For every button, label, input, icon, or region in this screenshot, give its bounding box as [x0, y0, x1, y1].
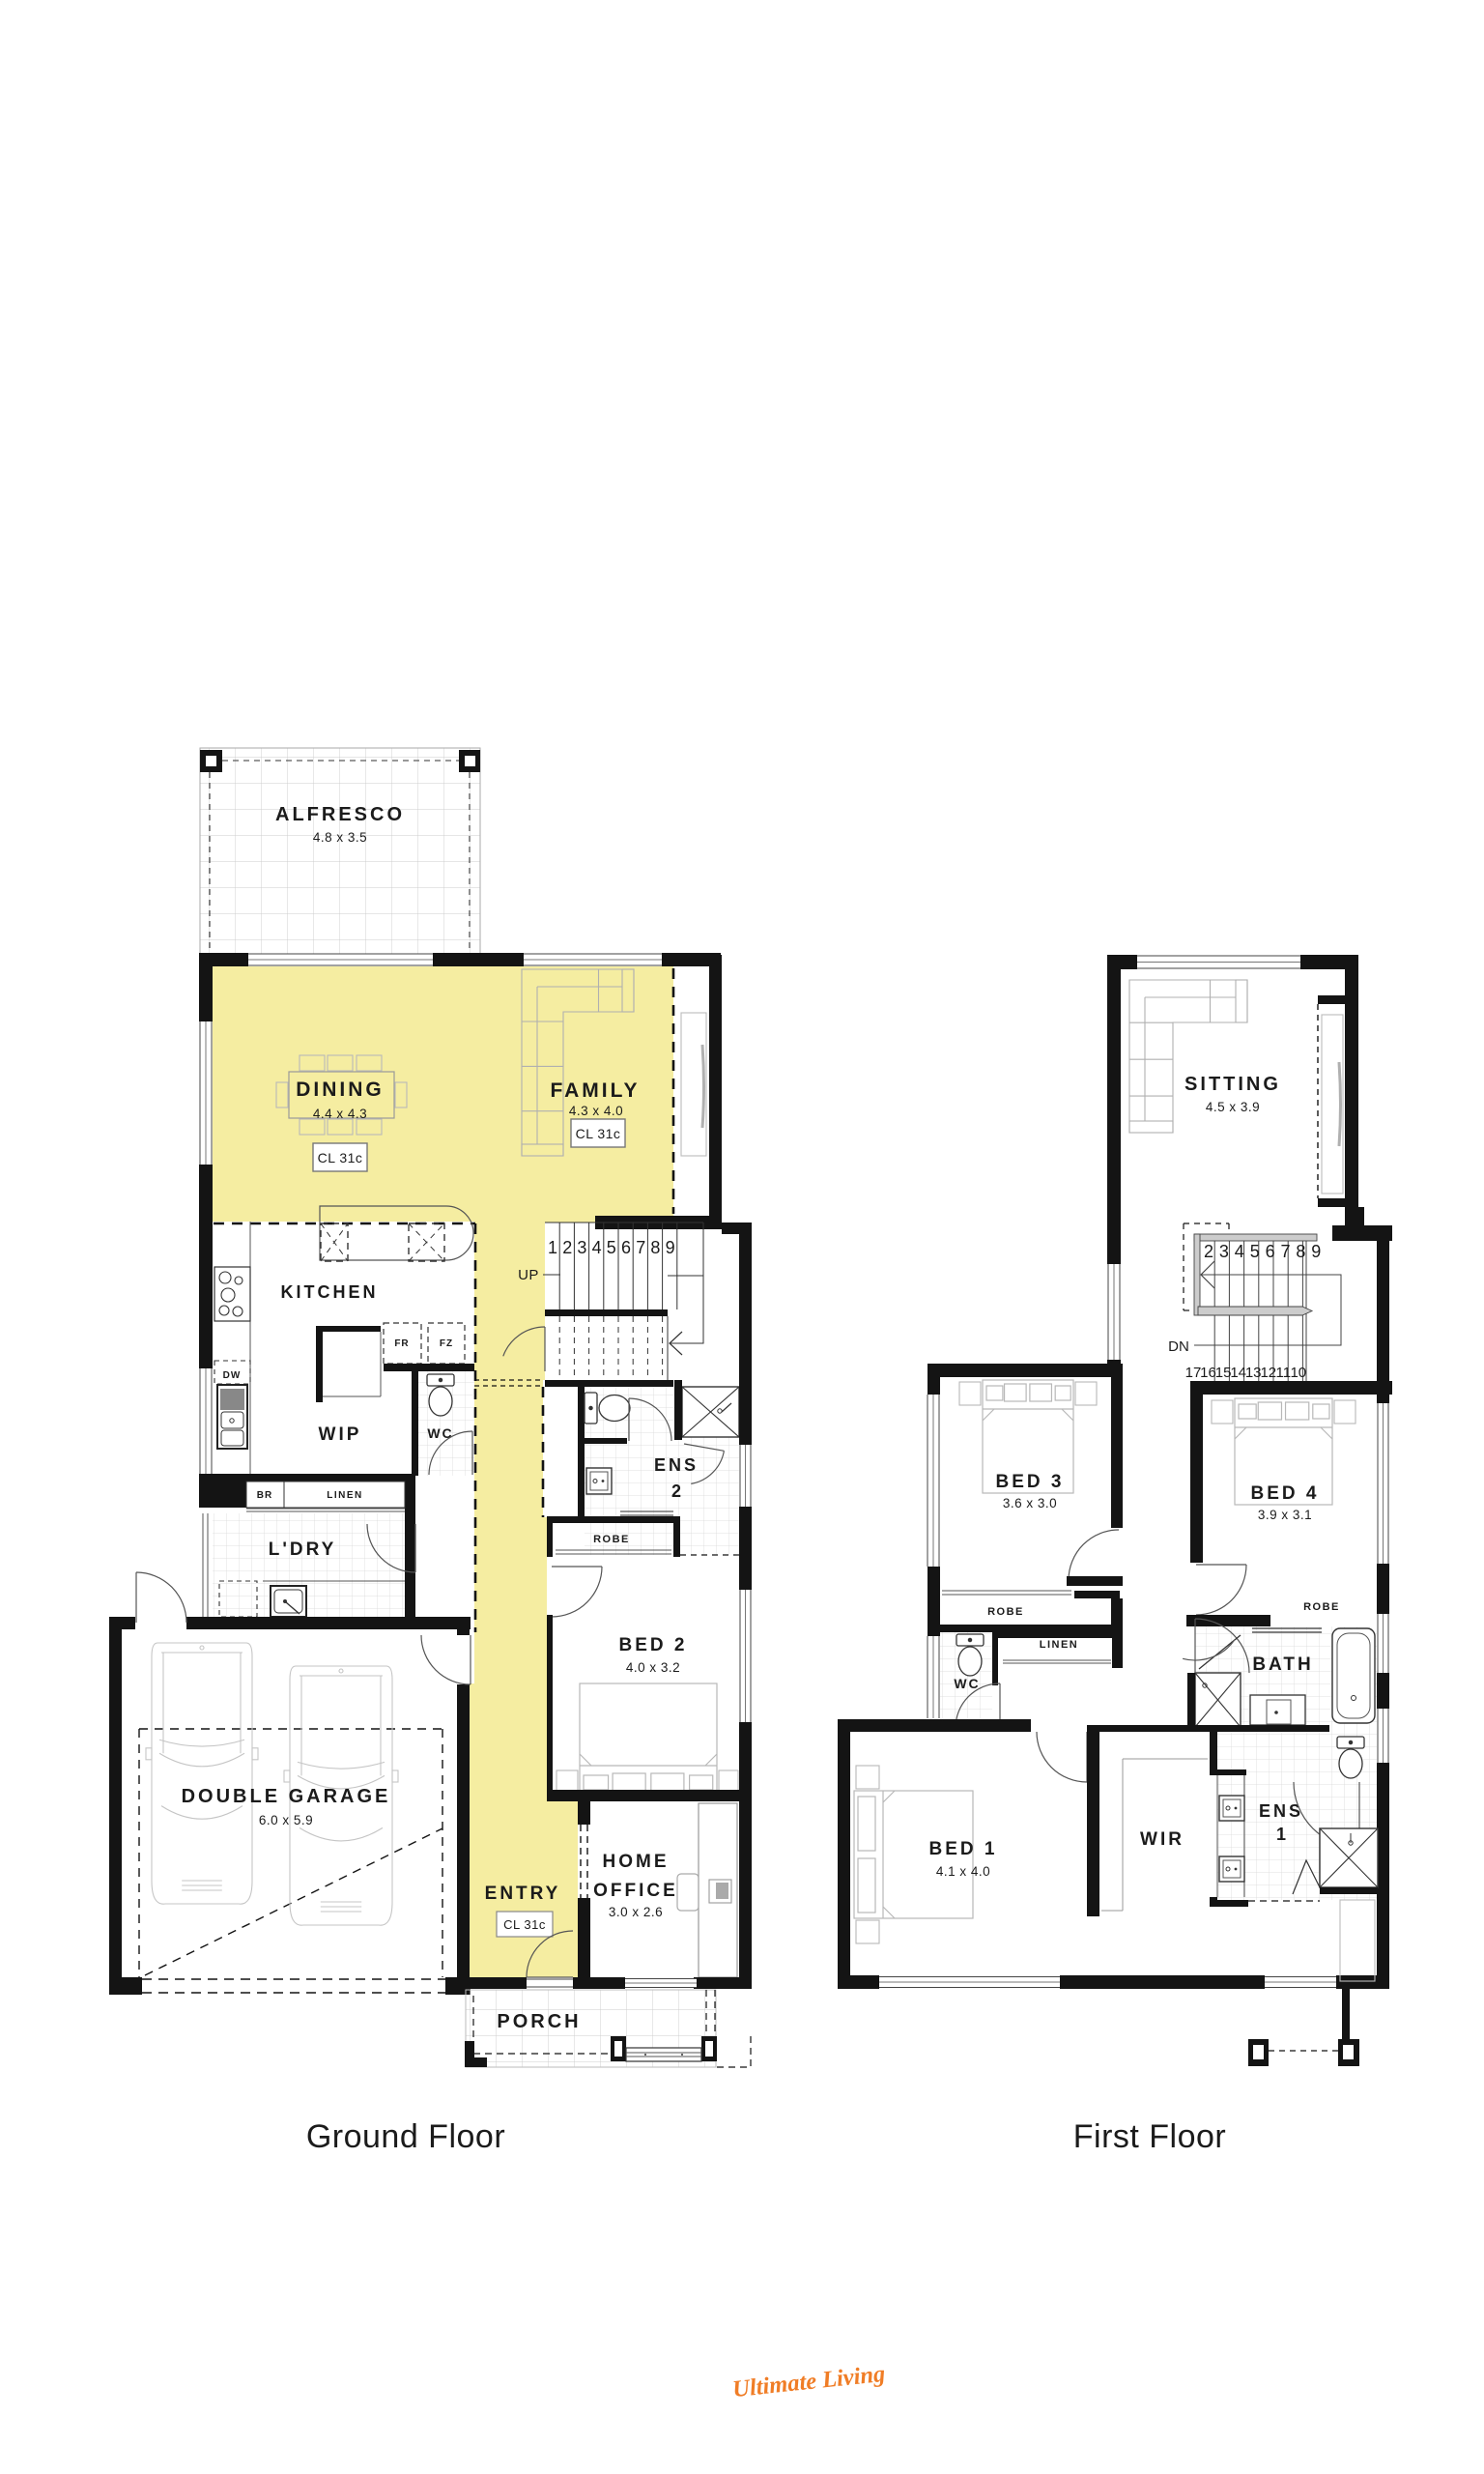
- svg-text:ROBE: ROBE: [987, 1606, 1024, 1618]
- svg-text:4: 4: [1235, 1242, 1244, 1261]
- svg-text:L'DRY: L'DRY: [269, 1539, 337, 1560]
- svg-text:ROBE: ROBE: [593, 1534, 630, 1545]
- svg-text:14: 14: [1230, 1365, 1246, 1381]
- svg-text:BATH: BATH: [1252, 1654, 1313, 1675]
- svg-text:2: 2: [562, 1238, 572, 1257]
- svg-text:BED 3: BED 3: [996, 1472, 1065, 1492]
- svg-text:PORCH: PORCH: [497, 2011, 581, 2032]
- svg-text:CL 31c: CL 31c: [318, 1150, 363, 1165]
- svg-text:12: 12: [1260, 1365, 1276, 1381]
- svg-text:FZ: FZ: [440, 1338, 453, 1349]
- svg-text:DW: DW: [223, 1370, 242, 1381]
- svg-text:9: 9: [666, 1238, 675, 1257]
- svg-text:FAMILY: FAMILY: [550, 1079, 640, 1102]
- svg-text:4.3 x 4.0: 4.3 x 4.0: [569, 1104, 623, 1118]
- svg-text:7: 7: [636, 1238, 645, 1257]
- svg-text:2: 2: [1204, 1242, 1213, 1261]
- svg-text:UP: UP: [518, 1267, 539, 1283]
- svg-text:17: 17: [1185, 1365, 1202, 1381]
- svg-text:DINING: DINING: [296, 1079, 385, 1101]
- svg-text:DN: DN: [1168, 1338, 1189, 1355]
- svg-text:WC: WC: [954, 1676, 980, 1691]
- svg-text:CL 31c: CL 31c: [576, 1126, 621, 1141]
- svg-text:HOME: HOME: [603, 1852, 670, 1872]
- svg-text:4.5 x 3.9: 4.5 x 3.9: [1206, 1100, 1260, 1114]
- svg-text:ALFRESCO: ALFRESCO: [275, 804, 405, 825]
- svg-text:BED 1: BED 1: [929, 1839, 998, 1859]
- svg-text:13: 13: [1245, 1365, 1262, 1381]
- svg-text:4.4 x 4.3: 4.4 x 4.3: [313, 1107, 367, 1121]
- svg-text:9: 9: [1311, 1242, 1321, 1261]
- svg-text:3: 3: [577, 1238, 586, 1257]
- svg-text:3.0 x 2.6: 3.0 x 2.6: [609, 1905, 663, 1919]
- svg-text:5: 5: [1250, 1242, 1260, 1261]
- svg-text:5: 5: [607, 1238, 616, 1257]
- svg-text:ENS: ENS: [654, 1455, 699, 1475]
- svg-text:SITTING: SITTING: [1184, 1074, 1281, 1095]
- svg-text:WC: WC: [427, 1425, 453, 1441]
- svg-text:15: 15: [1215, 1365, 1232, 1381]
- svg-text:8: 8: [650, 1238, 660, 1257]
- svg-text:6: 6: [1266, 1242, 1275, 1261]
- svg-text:1: 1: [1276, 1825, 1286, 1844]
- svg-text:WIP: WIP: [319, 1424, 362, 1445]
- svg-text:7: 7: [1280, 1242, 1290, 1261]
- svg-text:4.0 x 3.2: 4.0 x 3.2: [626, 1660, 680, 1675]
- svg-text:2: 2: [671, 1482, 681, 1501]
- svg-text:BED 2: BED 2: [619, 1635, 688, 1655]
- svg-text:16: 16: [1200, 1365, 1216, 1381]
- svg-text:OFFICE: OFFICE: [593, 1881, 678, 1901]
- svg-text:DOUBLE GARAGE: DOUBLE GARAGE: [182, 1786, 391, 1807]
- svg-text:3: 3: [1219, 1242, 1229, 1261]
- svg-text:4: 4: [592, 1238, 602, 1257]
- svg-text:3.9 x 3.1: 3.9 x 3.1: [1258, 1508, 1312, 1522]
- svg-text:1: 1: [548, 1238, 557, 1257]
- svg-text:ENS: ENS: [1259, 1801, 1303, 1821]
- svg-text:LINEN: LINEN: [327, 1490, 363, 1501]
- svg-text:6.0 x 5.9: 6.0 x 5.9: [259, 1813, 313, 1827]
- svg-text:11: 11: [1276, 1365, 1292, 1381]
- svg-text:First Floor: First Floor: [1073, 2118, 1227, 2155]
- svg-text:WIR: WIR: [1140, 1829, 1184, 1850]
- svg-text:FR: FR: [394, 1338, 409, 1349]
- svg-text:4.1 x 4.0: 4.1 x 4.0: [936, 1864, 990, 1879]
- svg-text:ROBE: ROBE: [1303, 1601, 1340, 1613]
- svg-text:3.6 x 3.0: 3.6 x 3.0: [1003, 1496, 1057, 1510]
- svg-text:ENTRY: ENTRY: [485, 1884, 561, 1904]
- svg-text:Ground Floor: Ground Floor: [306, 2118, 505, 2155]
- svg-text:6: 6: [621, 1238, 631, 1257]
- svg-text:BED 4: BED 4: [1251, 1483, 1320, 1504]
- svg-text:KITCHEN: KITCHEN: [281, 1282, 379, 1302]
- svg-text:LINEN: LINEN: [1040, 1639, 1079, 1651]
- svg-text:BR: BR: [257, 1490, 272, 1501]
- svg-text:4.8 x 3.5: 4.8 x 3.5: [313, 830, 367, 845]
- svg-text:10: 10: [1290, 1365, 1306, 1381]
- svg-text:8: 8: [1296, 1242, 1305, 1261]
- svg-text:CL 31c: CL 31c: [503, 1917, 546, 1932]
